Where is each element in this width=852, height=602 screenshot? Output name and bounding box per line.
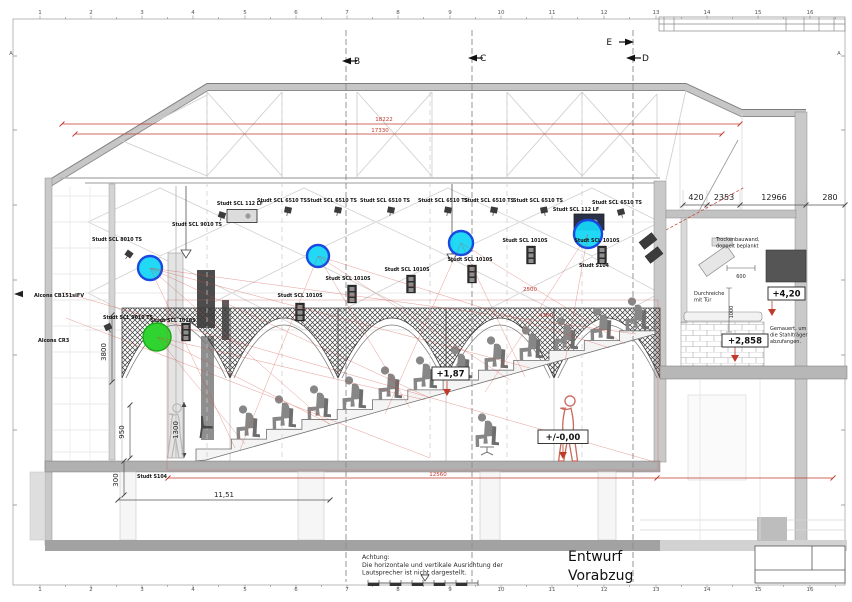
ruler-number: 4 <box>191 587 195 593</box>
stamp-line2: Vorabzug <box>568 568 633 584</box>
column-speaker-icon <box>598 246 607 264</box>
annotation: doppelt beplankt <box>716 244 759 250</box>
speaker-icon <box>217 211 226 222</box>
speaker-label: Studt SCL 1010S <box>384 267 430 273</box>
dimension: 2353 <box>714 193 734 202</box>
speaker-label: Alcons CB151slFV <box>34 293 84 299</box>
dimension-red: 18222 <box>375 117 393 123</box>
speaker-label: Studt SCL 9010 TS <box>172 222 223 228</box>
dimension: 1300 <box>172 421 180 439</box>
frame-letter: A <box>9 51 13 57</box>
ruler-number: 11 <box>549 587 556 593</box>
ruler-number: 2 <box>89 10 93 16</box>
speaker-icon <box>443 206 452 216</box>
dimension: 11,51 <box>214 491 234 499</box>
dimension: 300 <box>112 473 120 486</box>
annotation: abzufangen. <box>770 339 801 345</box>
speaker-label: Studt SCL 6510 TS <box>464 198 515 204</box>
speaker-icon <box>283 206 292 216</box>
seated-person-figure <box>476 413 500 447</box>
ruler-number: 8 <box>396 10 400 16</box>
annotation: Gemauert, um <box>770 326 806 332</box>
elevation-value: +2,858 <box>728 337 762 347</box>
annotation: Trockenbauwand, <box>715 237 760 243</box>
ruler-number: 5 <box>243 10 247 16</box>
speaker-label: Studt SCL 6510 TS <box>592 200 643 206</box>
ruler-number: 7 <box>345 10 349 16</box>
seated-person-figure <box>308 385 332 419</box>
ruler-number: 15 <box>755 587 762 593</box>
speaker-icon <box>333 206 342 216</box>
column-speaker-icon <box>527 246 536 264</box>
fly-gallery <box>52 186 109 460</box>
main-floor-slab <box>45 461 660 472</box>
speaker-label: Studt SCL 112 LF <box>553 207 599 213</box>
roof-truss <box>120 90 686 180</box>
left-arrow-icon <box>14 291 23 297</box>
annotation: die Stahlträger <box>770 333 808 339</box>
ruler-number: 10 <box>498 10 505 16</box>
seated-person-figure <box>237 405 261 439</box>
ruler-number: 12 <box>601 10 608 16</box>
elevation-value: +/-0,00 <box>546 433 581 443</box>
annotation: Durchreiche <box>694 291 724 297</box>
right-annex <box>660 113 847 540</box>
scale-bar <box>368 575 478 586</box>
speaker-label: Studt S104 <box>137 474 168 480</box>
ruler-number: 3 <box>140 587 144 593</box>
dimension: 12966 <box>761 193 786 202</box>
dimension: 420 <box>688 193 703 202</box>
ruler-number: 14 <box>704 10 711 16</box>
speaker-label: Studt SCL 6510 TS <box>257 198 308 204</box>
seated-person-figure <box>273 395 297 429</box>
frame-letter: A <box>837 51 841 57</box>
warning-line3: Lautsprecher ist nicht dargestellt. <box>362 570 466 577</box>
speaker-label: Studt S104 <box>579 263 610 269</box>
office-chair-icon <box>480 447 494 455</box>
section-marker-label: E <box>606 38 612 48</box>
speaker-label: Studt SCL 6510 TS <box>360 198 411 204</box>
warning-line1: Achtung: <box>362 554 390 561</box>
speaker-label: Studt SCL 8010 TS <box>92 237 143 243</box>
ruler-number: 6 <box>294 10 298 16</box>
column-speaker-icon <box>468 265 477 283</box>
section-marker-label: B <box>354 57 360 67</box>
ruler-number: 15 <box>755 10 762 16</box>
speaker-label: Studt SCL 1010S <box>150 318 196 324</box>
speaker-icon <box>617 208 626 219</box>
ruler-number: 1 <box>38 587 42 593</box>
dimension: 280 <box>822 193 837 202</box>
speaker-label: Studt SCL 1010S <box>325 276 371 282</box>
speaker-label: Alcons CR3 <box>38 338 70 344</box>
section-arrow-icon <box>626 55 635 62</box>
ruler-number: 4 <box>191 10 195 16</box>
ruler-number: 3 <box>140 10 144 16</box>
dimension: 1000 <box>729 306 735 319</box>
section-marker-label: C <box>480 54 486 64</box>
ruler-number: 2 <box>89 587 93 593</box>
ruler-number: 9 <box>448 587 452 593</box>
speaker-label: Studt SCL 1010S <box>574 238 620 244</box>
warning-line2: Die horizontale und vertikale Ausrichtun… <box>362 562 503 569</box>
speaker-label: Studt SCL 6510 TS <box>513 198 564 204</box>
column-speaker-icon <box>296 303 305 321</box>
ruler-number: 11 <box>549 10 556 16</box>
ruler-number: 13 <box>653 587 660 593</box>
ruler-number: 8 <box>396 587 400 593</box>
speaker-label: Studt SCL 9010 TS <box>103 315 154 321</box>
level-marker <box>768 301 776 316</box>
annotation: mit Tür <box>694 298 712 304</box>
standing-person-outline-red <box>559 396 578 461</box>
ruler-number: 6 <box>294 587 298 593</box>
roof-slab <box>48 87 806 184</box>
ruler-number: 9 <box>448 10 452 16</box>
section-arrow-icon <box>468 55 477 62</box>
column-speaker-icon <box>407 275 416 293</box>
speaker-label: Studt SCL 6510 TS <box>418 198 469 204</box>
grid-lines <box>207 30 633 582</box>
dimension-red: 12560 <box>429 472 447 478</box>
ruler-number: 10 <box>498 587 505 593</box>
drawing-canvas: Studt SCL 8010 TSStudt SCL 9010 TSStudt … <box>0 0 852 602</box>
dimension-red: 4260 <box>539 313 553 319</box>
ruler-number: 13 <box>653 10 660 16</box>
speaker-icon <box>123 250 134 261</box>
dimension: 3800 <box>100 343 108 361</box>
dimension-red: 17330 <box>371 128 389 134</box>
ruler-number: 5 <box>243 587 247 593</box>
fixed-texts: Entwurf Vorabzug Achtung: Die horizontal… <box>362 549 633 584</box>
section-arrow-icon <box>342 58 351 65</box>
ruler-number: 14 <box>704 587 711 593</box>
stamp-line1: Entwurf <box>568 549 623 565</box>
section-drawing: Studt SCL 8010 TSStudt SCL 9010 TSStudt … <box>0 0 852 602</box>
subwoofer-icon <box>227 210 257 223</box>
elevation-value: +4,20 <box>772 290 800 300</box>
title-block <box>755 546 845 583</box>
dimension: 950 <box>118 425 126 438</box>
speaker-icon <box>540 206 549 216</box>
dimension: 600 <box>736 274 746 280</box>
speaker-label: Studt SCL 6510 TS <box>307 198 358 204</box>
speaker-label: Studt SCL 1010S <box>502 238 548 244</box>
ruler-number: 7 <box>345 587 349 593</box>
column-speaker-icon <box>182 323 191 341</box>
speaker-label: Studt SCL 1010S <box>277 293 323 299</box>
dimension-red: 2500 <box>523 287 537 293</box>
ruler-number: 16 <box>807 587 814 593</box>
ruler-number: 12 <box>601 587 608 593</box>
section-marker-label: D <box>642 54 649 64</box>
ruler-number: 1 <box>38 10 42 16</box>
seated-person-figure <box>485 336 509 370</box>
ruler-number: 16 <box>807 10 814 16</box>
left-wall <box>45 178 52 545</box>
elevation-value: +1,87 <box>436 370 464 380</box>
speaker-label: Studt SCL 1010S <box>447 257 493 263</box>
